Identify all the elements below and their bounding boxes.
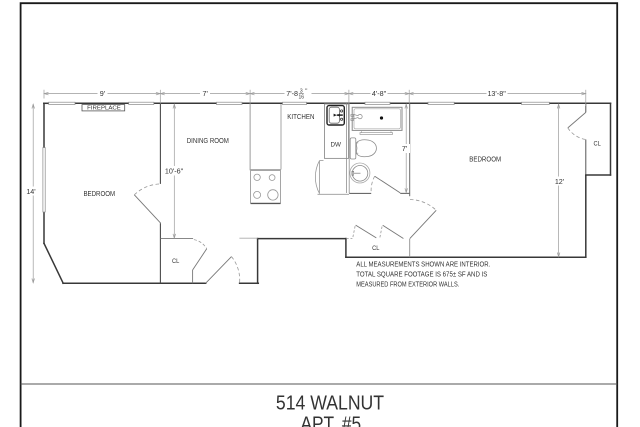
- svg-text:10'-6": 10'-6": [165, 167, 184, 176]
- svg-text:": ": [305, 89, 307, 95]
- svg-text:BEDROOM: BEDROOM: [83, 189, 115, 198]
- svg-text:7': 7': [203, 89, 209, 98]
- svg-text:7'-8: 7'-8: [286, 89, 298, 98]
- svg-text:BEDROOM: BEDROOM: [469, 155, 501, 164]
- svg-text:CL: CL: [172, 259, 180, 265]
- svg-text:7': 7': [402, 144, 408, 153]
- svg-text:KITCHEN: KITCHEN: [287, 112, 314, 121]
- svg-text:DW: DW: [330, 142, 341, 149]
- svg-text:APT. #5: APT. #5: [300, 413, 361, 427]
- svg-text:14': 14': [26, 187, 36, 196]
- svg-text:CL: CL: [594, 142, 602, 148]
- svg-text:4'-8": 4'-8": [372, 89, 387, 98]
- svg-text:CL: CL: [372, 246, 380, 252]
- svg-text:514 WALNUT: 514 WALNUT: [276, 392, 384, 414]
- svg-text:MEASURED FROM EXTERIOR WALLS.: MEASURED FROM EXTERIOR WALLS.: [356, 282, 459, 289]
- svg-text:16: 16: [299, 94, 305, 100]
- svg-text:13'-8": 13'-8": [487, 89, 506, 98]
- svg-text:ALL MEASUREMENTS SHOWN ARE INT: ALL MEASUREMENTS SHOWN ARE INTERIOR.: [356, 262, 490, 269]
- svg-text:12': 12': [555, 177, 565, 186]
- svg-text:FIREPLACE: FIREPLACE: [87, 106, 121, 112]
- svg-text:TOTAL SQUARE FOOTAGE IS 675± S: TOTAL SQUARE FOOTAGE IS 675± SF AND IS: [356, 272, 487, 279]
- svg-text:DINING ROOM: DINING ROOM: [187, 136, 229, 145]
- svg-text:9': 9': [100, 89, 106, 98]
